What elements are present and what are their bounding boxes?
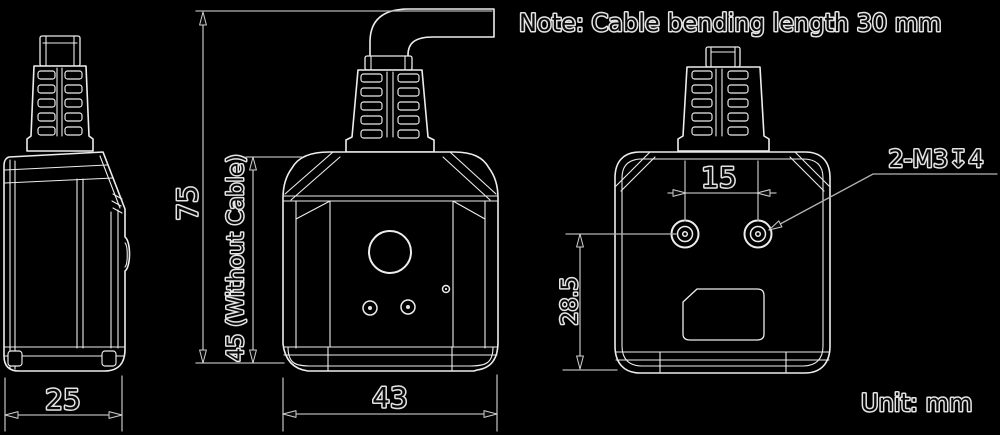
cable-connector-side — [27, 36, 93, 151]
note-text: Note: Cable bending length 30 mm — [519, 9, 942, 37]
side-view — [4, 36, 130, 371]
engineering-drawing: 75 45 (Without Cable) 25 43 — [0, 0, 1000, 435]
strain-relief-rear — [678, 67, 769, 151]
front-view — [283, 9, 498, 371]
foot-pad — [8, 351, 22, 366]
dimension-side-width-25: 25 — [5, 376, 122, 431]
dim-hole-spacing-label: 15 — [701, 161, 737, 194]
strain-relief-side — [27, 66, 93, 151]
foot-pad — [102, 351, 116, 366]
thread-callout-label: 2-M3↧4 — [888, 145, 983, 173]
strain-relief-front — [346, 70, 434, 152]
dim-body-height-label: 45 (Without Cable) — [224, 154, 249, 362]
dim-side-width-label: 25 — [45, 383, 81, 416]
dim-overall-height-label: 75 — [171, 185, 204, 221]
technical-drawing-page: 75 45 (Without Cable) 25 43 — [0, 0, 1000, 435]
dimension-front-width-43: 43 — [283, 375, 497, 431]
dim-hole-height-label: 28.5 — [558, 277, 583, 326]
rear-view — [615, 47, 830, 373]
front-body-outline — [283, 152, 498, 371]
label-recess — [683, 289, 764, 340]
cable-connector-rear — [678, 47, 769, 151]
unit-text: Unit: mm — [861, 389, 972, 417]
dimensions: 75 45 (Without Cable) 25 43 — [5, 11, 997, 431]
dim-front-width-label: 43 — [372, 381, 408, 414]
